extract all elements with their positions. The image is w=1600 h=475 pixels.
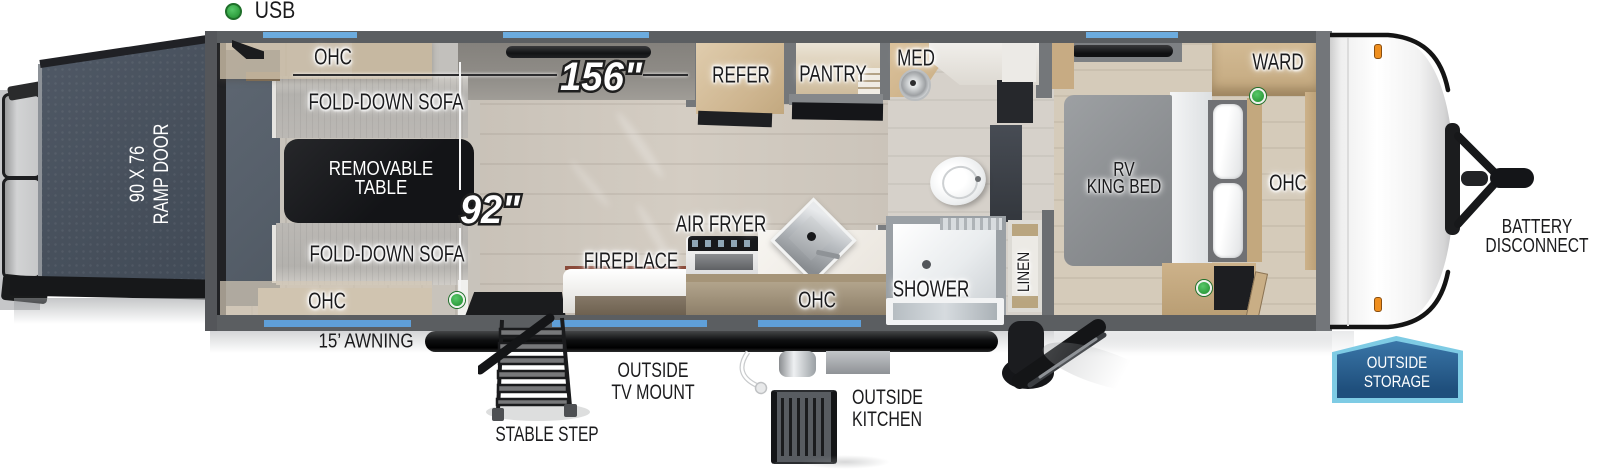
svg-text:156": 156" bbox=[560, 55, 643, 96]
svg-text:92": 92" bbox=[460, 188, 521, 229]
